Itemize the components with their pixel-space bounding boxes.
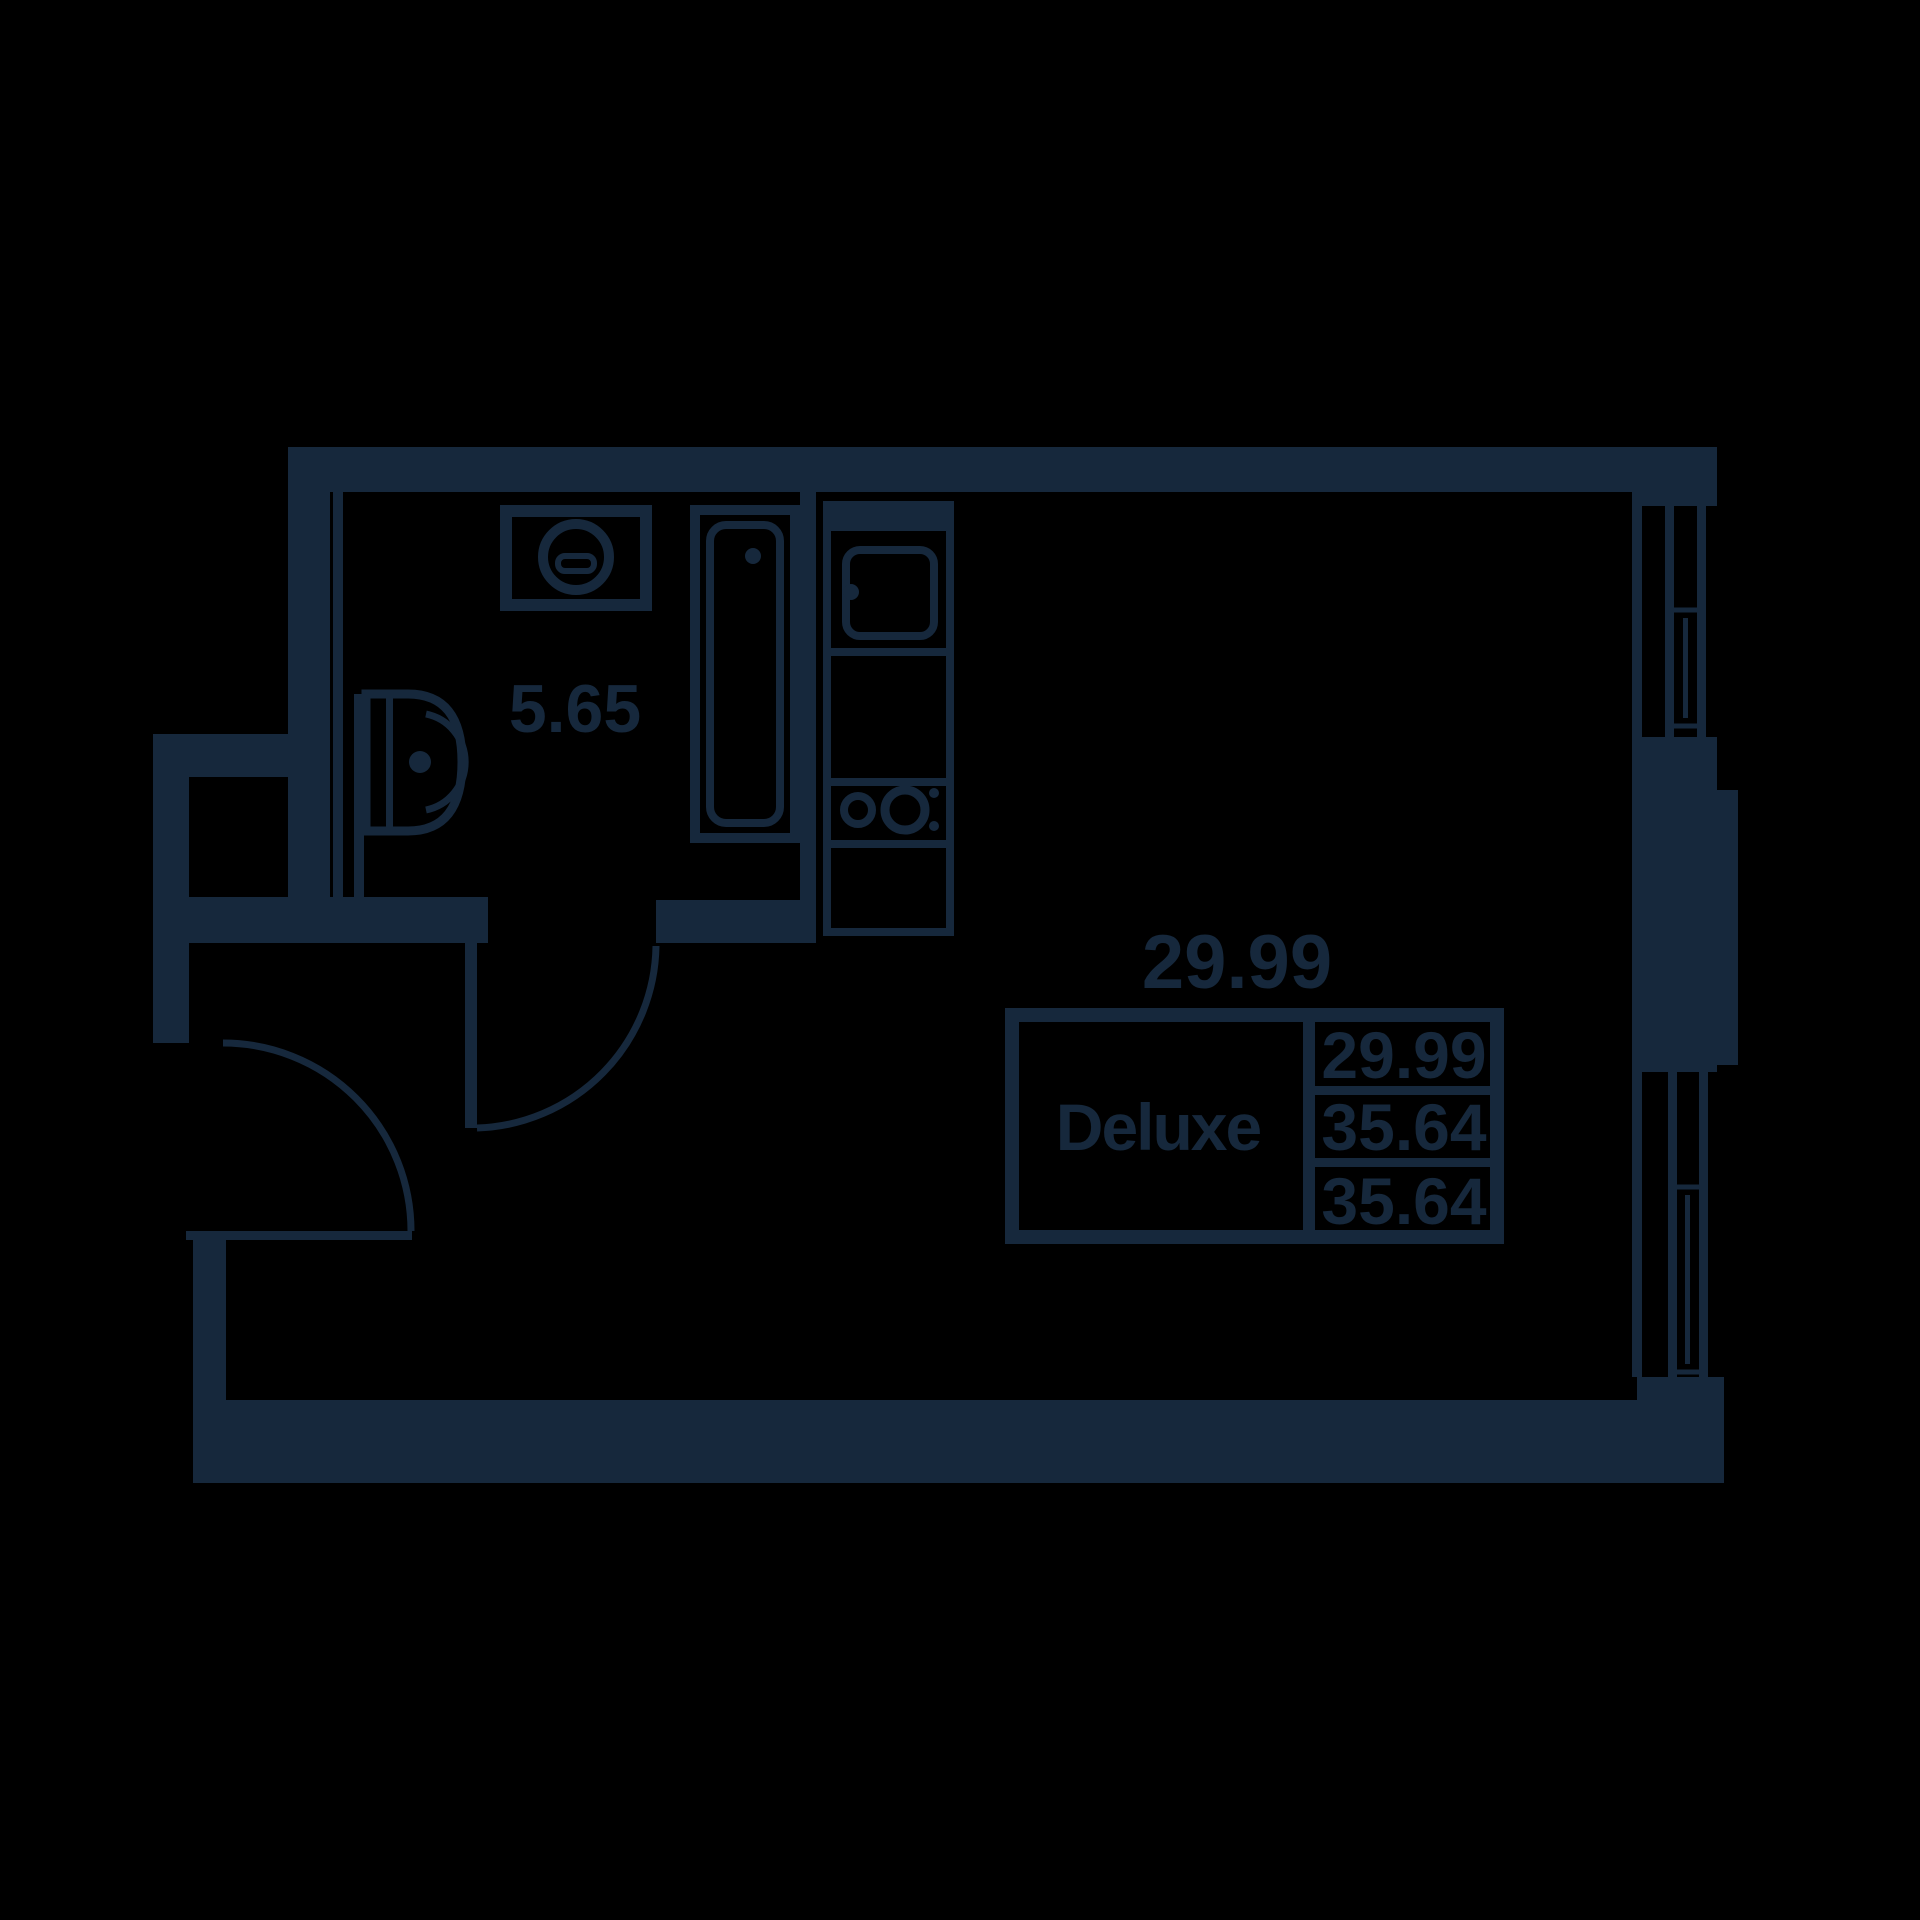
unit-card-column-divider	[1303, 1015, 1315, 1237]
kitchen-sink-basin	[846, 550, 934, 636]
stove-knob-dot-2	[929, 821, 939, 831]
wall-bathroom-bottom-left	[185, 897, 488, 943]
kitchen-divider-line-3	[827, 840, 950, 848]
stove-burner-small	[844, 796, 872, 824]
bathroom-door	[465, 943, 656, 1128]
unit-card-value-1: 29.99	[1321, 1018, 1486, 1092]
kitchen-sink-faucet-dot	[843, 584, 859, 600]
entrance-door-leaf	[186, 1231, 412, 1240]
wall-left-upper	[288, 492, 330, 900]
bathtub-inner	[710, 525, 780, 823]
window-upper-sash-line	[1683, 618, 1688, 718]
floorplan-svg: 5.65 29.99 Deluxe 29.99 35.64 35.64	[0, 0, 1920, 1920]
washbasin-icon	[506, 511, 646, 605]
washbasin-drain	[558, 556, 594, 571]
labels: 5.65 29.99	[509, 671, 1332, 1005]
unit-card: Deluxe 29.99 35.64 35.64	[1012, 1015, 1497, 1238]
kitchen-divider-line-2	[827, 778, 950, 786]
kitchen-divider-line-1	[827, 648, 950, 656]
window-upper-inner-face-line	[1632, 506, 1642, 737]
bathtub-icon	[695, 510, 795, 838]
wall-bathroom-kitchen-divider	[800, 492, 816, 943]
wall-bottom-right-corner	[1637, 1377, 1724, 1407]
room-area-label: 29.99	[1142, 920, 1332, 1005]
stove-burner-large	[885, 790, 925, 830]
wall-bottom	[193, 1400, 1724, 1483]
kitchen-unit	[827, 505, 950, 932]
wall-right-top-stub	[1632, 492, 1717, 506]
wall-bathroom-bottom-right	[656, 900, 816, 943]
bathtub-drain-dot	[745, 548, 761, 564]
wall-top	[288, 447, 1717, 492]
wall-right-pier	[1632, 737, 1717, 1072]
bathroom-door-swing-arc	[477, 946, 656, 1128]
kitchen-counter-top-cap	[827, 505, 950, 531]
bathroom-area-label: 5.65	[509, 671, 641, 747]
bathroom-door-leaf	[465, 943, 477, 1128]
floorplan-canvas: 5.65 29.99 Deluxe 29.99 35.64 35.64	[0, 0, 1920, 1920]
entrance-door-swing-arc	[223, 1043, 411, 1231]
window-lower	[1632, 1072, 1708, 1377]
window-lower-sash-line	[1685, 1195, 1690, 1364]
wall-bathroom-inner-line-1	[333, 492, 343, 900]
doors	[186, 943, 656, 1240]
window-lower-inner-face-line	[1632, 1072, 1642, 1377]
walls	[153, 447, 1738, 1483]
window-upper	[1632, 506, 1706, 737]
unit-card-name: Deluxe	[1056, 1090, 1261, 1164]
stove-burners-icon	[844, 788, 939, 831]
toilet-flush-dot	[409, 751, 431, 773]
toilet-tank-line	[386, 693, 393, 832]
unit-card-value-3: 35.64	[1321, 1164, 1486, 1238]
unit-card-value-2: 35.64	[1321, 1090, 1486, 1164]
entrance-door	[186, 1043, 412, 1240]
kitchen-sink-icon	[843, 550, 934, 636]
toilet-icon	[366, 693, 465, 832]
wall-right-pier-outer-step	[1717, 790, 1738, 1065]
wall-left-outer-mid	[153, 734, 189, 1043]
stove-knob-dot-1	[929, 788, 939, 798]
